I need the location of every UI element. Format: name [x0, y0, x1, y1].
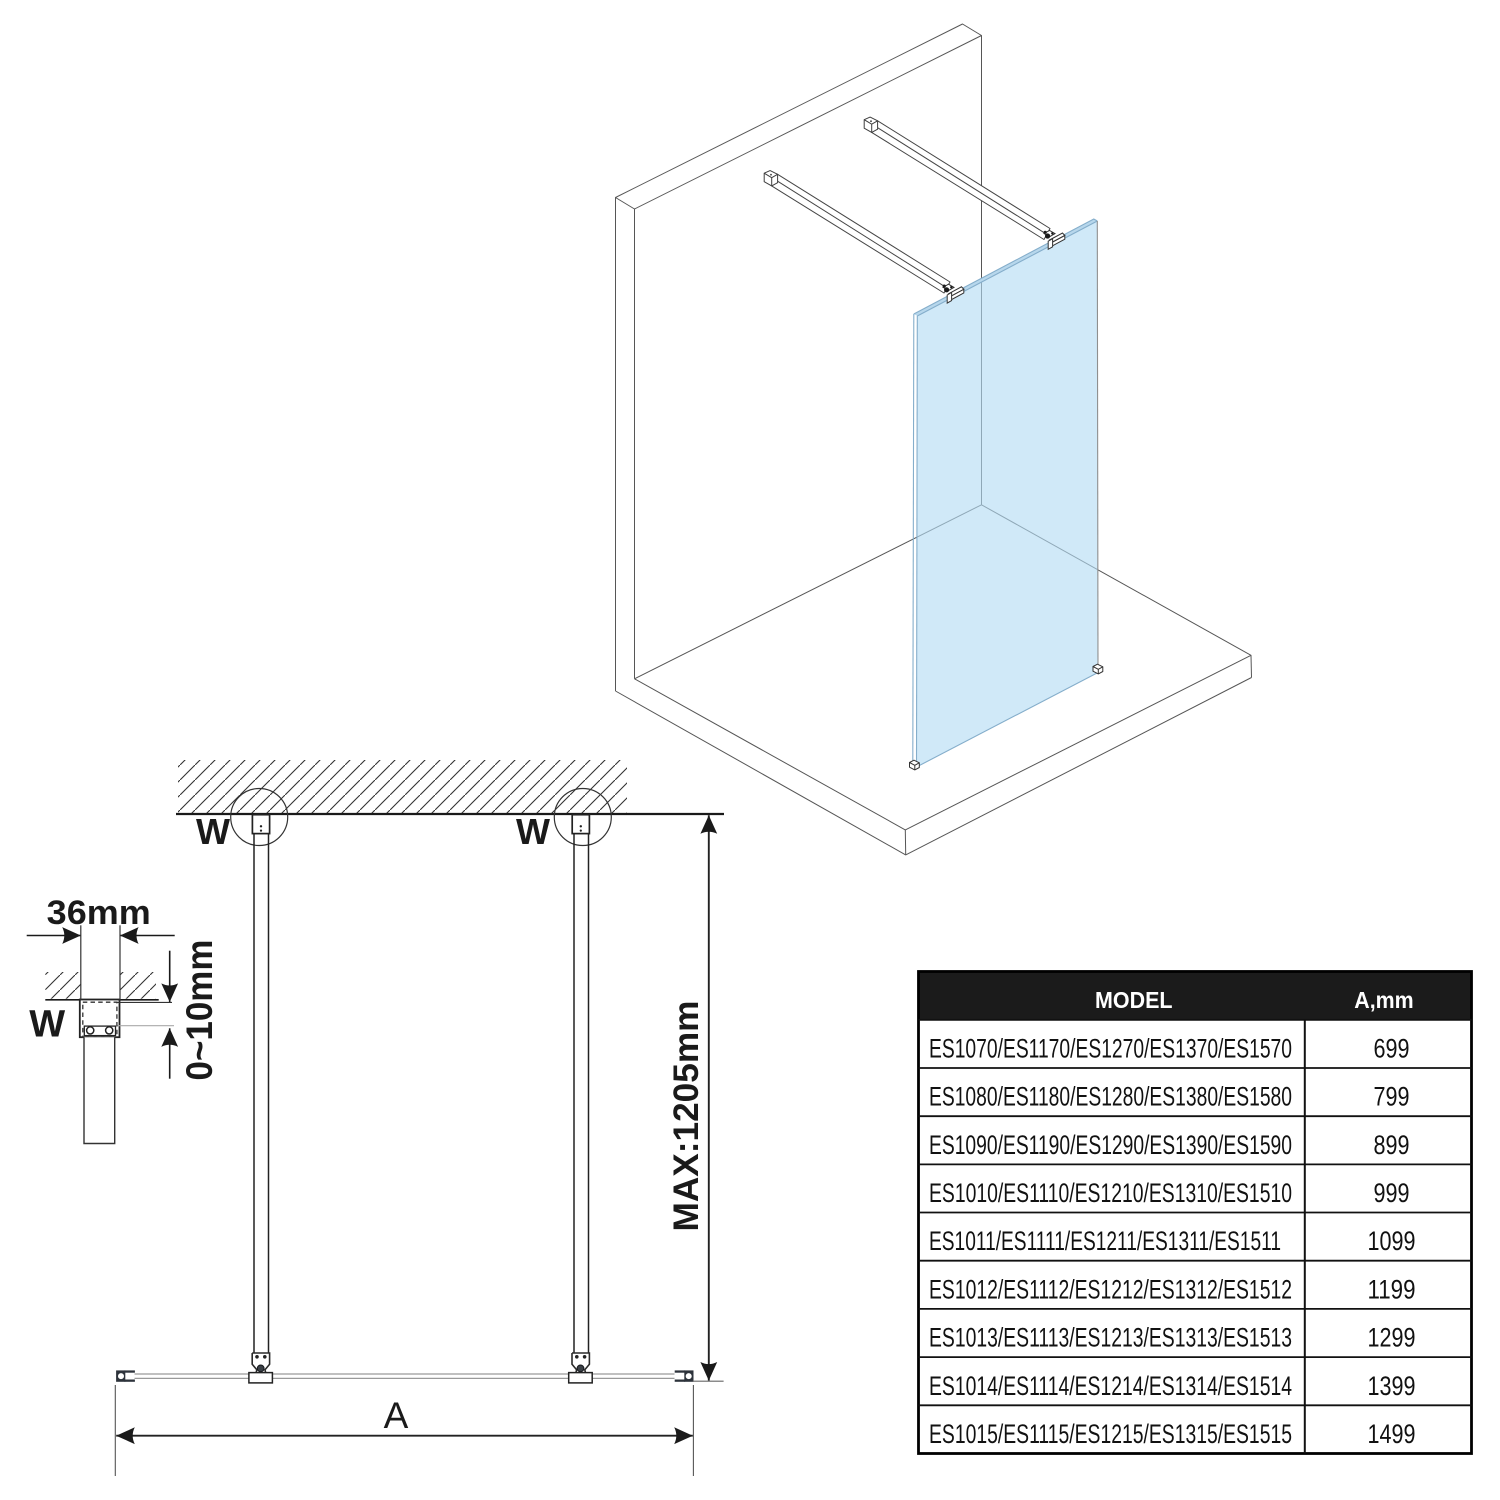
svg-text:W: W: [516, 811, 550, 852]
svg-text:ES1010/ES1110/ES1210/ES1310/ES: ES1010/ES1110/ES1210/ES1310/ES1510: [929, 1178, 1292, 1208]
svg-text:ES1011/ES1111/ES1211/ES1311/ES: ES1011/ES1111/ES1211/ES1311/ES1511: [929, 1226, 1281, 1256]
svg-text:ES1090/ES1190/ES1290/ES1390/ES: ES1090/ES1190/ES1290/ES1390/ES1590: [929, 1130, 1292, 1160]
svg-text:699: 699: [1374, 1034, 1410, 1064]
svg-text:899: 899: [1374, 1130, 1410, 1160]
svg-text:1399: 1399: [1368, 1371, 1416, 1401]
svg-text:W: W: [196, 811, 230, 852]
svg-text:ES1080/ES1180/ES1280/ES1380/ES: ES1080/ES1180/ES1280/ES1380/ES1580: [929, 1082, 1292, 1112]
svg-text:799: 799: [1374, 1082, 1410, 1112]
svg-text:ES1014/ES1114/ES1214/ES1314/ES: ES1014/ES1114/ES1214/ES1314/ES1514: [929, 1371, 1292, 1401]
svg-text:1299: 1299: [1368, 1323, 1416, 1353]
svg-text:36mm: 36mm: [47, 894, 151, 932]
svg-text:MODEL: MODEL: [1095, 987, 1173, 1013]
svg-text:ES1015/ES1115/ES1215/ES1315/ES: ES1015/ES1115/ES1215/ES1315/ES1515: [929, 1419, 1292, 1449]
svg-text:MAX:1205mm: MAX:1205mm: [667, 1001, 706, 1232]
svg-text:0~10mm: 0~10mm: [179, 940, 220, 1081]
svg-text:1199: 1199: [1368, 1274, 1416, 1304]
svg-text:1099: 1099: [1368, 1226, 1416, 1256]
svg-text:1499: 1499: [1368, 1419, 1416, 1449]
svg-text:999: 999: [1374, 1178, 1410, 1208]
svg-text:ES1012/ES1112/ES1212/ES1312/ES: ES1012/ES1112/ES1212/ES1312/ES1512: [929, 1274, 1292, 1304]
svg-text:A,mm: A,mm: [1354, 987, 1413, 1013]
svg-text:ES1013/ES1113/ES1213/ES1313/ES: ES1013/ES1113/ES1213/ES1313/ES1513: [929, 1323, 1292, 1353]
svg-text:A: A: [384, 1395, 409, 1436]
svg-text:W: W: [29, 1004, 65, 1046]
svg-text:ES1070/ES1170/ES1270/ES1370/ES: ES1070/ES1170/ES1270/ES1370/ES1570: [929, 1034, 1292, 1064]
